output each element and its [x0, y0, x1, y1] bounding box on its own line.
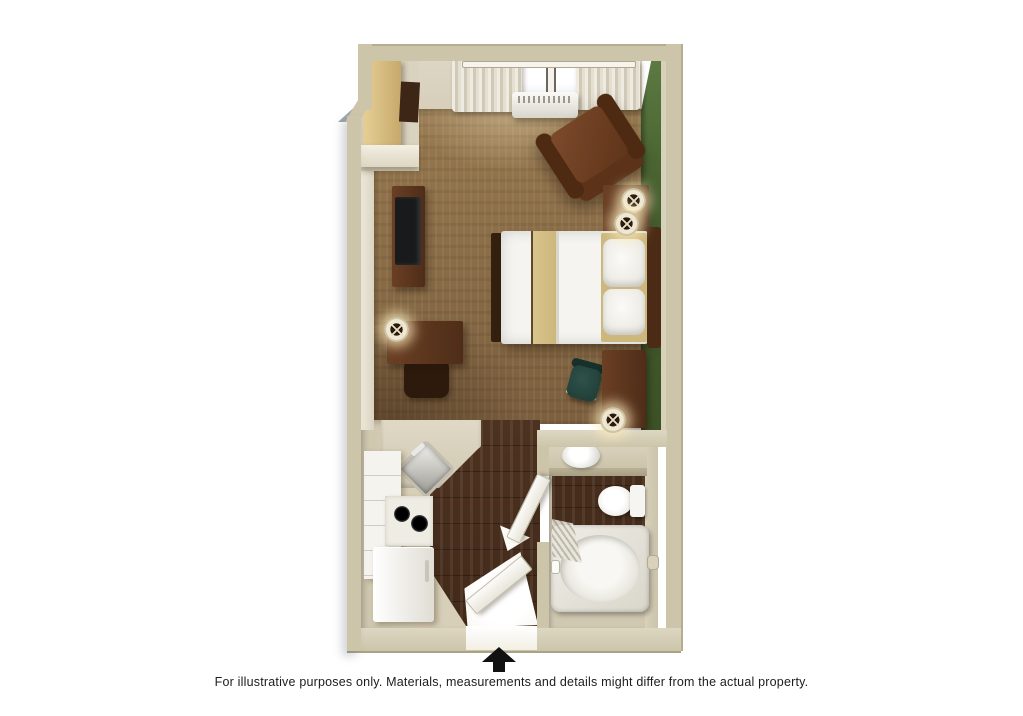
curtain-rod [462, 61, 636, 68]
outer-wall-right [666, 44, 683, 651]
inner-wall-left-face [361, 167, 374, 430]
closet-stored-item [399, 82, 420, 123]
north-arrow-stem [493, 661, 505, 672]
refrigerator [373, 547, 434, 622]
outer-wall-left-lower [347, 116, 361, 651]
grab-bar [647, 555, 659, 570]
disclaimer-caption: For illustrative purposes only. Material… [0, 675, 1023, 689]
bathroom-vanity-edge [549, 468, 647, 476]
closet-lower-shelf [361, 145, 419, 167]
pillow [603, 239, 645, 287]
kitchen-bathroom-wall-lower [537, 542, 549, 628]
tv-screen [395, 197, 421, 265]
cooktop-burner [394, 506, 410, 522]
floor-plan-canvas: For illustrative purposes only. Material… [0, 0, 1023, 716]
desk-lamp-icon [384, 317, 409, 342]
pillow [603, 289, 645, 335]
desk-chair [404, 359, 449, 398]
bed-duvet-fold [556, 231, 559, 344]
floor-lamp-icon [600, 407, 626, 433]
toilet-bowl [598, 486, 633, 516]
refrigerator-handle [425, 560, 429, 582]
toilet-tank [630, 485, 645, 517]
nightstand-lamp-icon [614, 211, 639, 236]
air-conditioner-grille [518, 96, 572, 103]
cooktop-burner [411, 515, 428, 532]
office-chair-seat [565, 364, 603, 404]
north-arrow-icon [482, 647, 516, 662]
bathtub-faucet [551, 560, 560, 574]
bed-headboard [647, 227, 661, 348]
outer-wall-top [358, 44, 681, 61]
bed-runner [531, 231, 558, 344]
nightstand-lamp-icon [621, 188, 646, 213]
bathroom-top-wall [537, 430, 667, 447]
